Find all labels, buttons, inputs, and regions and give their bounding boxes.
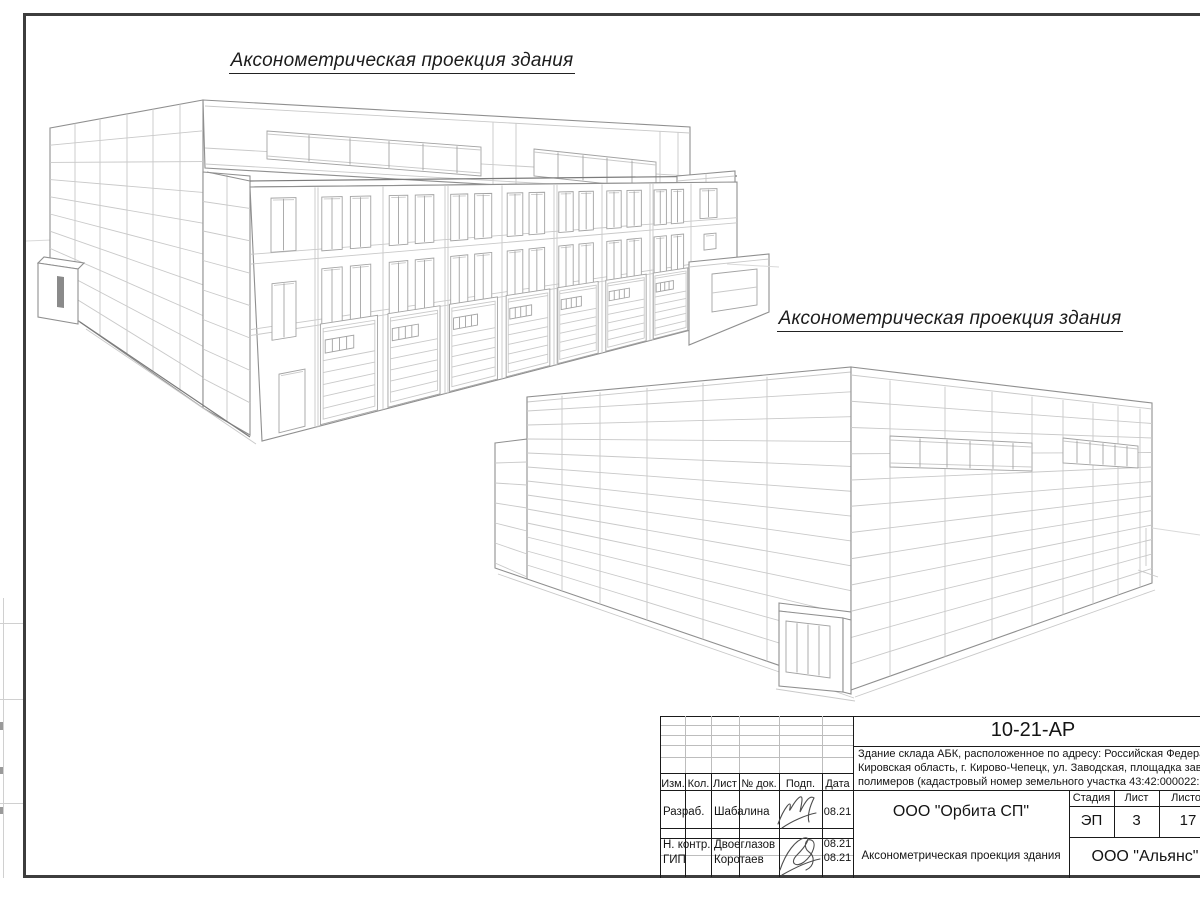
signatures [770, 788, 830, 880]
stamp-stage-value: ЭП [1069, 812, 1114, 829]
stamp-description-line2: Кировская область, г. Кирово-Чепецк, ул.… [858, 762, 1200, 775]
signature-ncontrol-gip [780, 838, 820, 875]
stamp-sheet-value: 3 [1114, 812, 1159, 829]
stamp-role-gip: ГИП [663, 854, 686, 867]
stamp-role-ncontrol: Н. контр. [663, 839, 710, 852]
axon-view-building-2 [495, 367, 1200, 701]
stamp-description-line1: Здание склада АБК, расположенное по адре… [858, 748, 1200, 761]
view1-title-text: Аксонометрическая проекция здания [229, 50, 576, 74]
stamp-org: ООО "Орбита СП" [853, 803, 1069, 821]
drawing-sheet: Аксонометрическая проекция здания Аксоно… [0, 0, 1200, 900]
stamp-name-ncontrol: Двоеглазов [714, 839, 775, 852]
stamp-col-list: Лист [711, 778, 739, 791]
stamp-col-izm: Изм. [660, 778, 686, 791]
stamp-description-line3: полимеров (кадастровый номер земельного … [858, 776, 1200, 789]
stamp-sheet-label: Лист [1114, 792, 1159, 805]
stamp-sheet-title: Аксонометрическая проекция здания [855, 850, 1067, 863]
stamp-role-developer: Разраб. [663, 806, 704, 819]
stamp-stage-label: Стадия [1069, 792, 1114, 805]
stamp-sheets-value: 17 [1159, 812, 1200, 829]
stamp-name-developer: Шабалина [714, 806, 770, 819]
stamp-doc-number: 10-21-АР [853, 719, 1200, 742]
stamp-sheets-label: Листов [1159, 792, 1200, 805]
stamp-name-gip: Коротаев [714, 854, 764, 867]
stamp-col-kol: Кол. [686, 778, 711, 791]
view2-title-text: Аксонометрическая проекция здания [777, 308, 1124, 332]
view2-title: Аксонометрическая проекция здания [770, 308, 1130, 330]
stamp-contractor: ООО "Альянс" [1069, 848, 1200, 866]
signature-developer [778, 797, 816, 828]
view1-title: Аксонометрическая проекция здания [222, 50, 582, 72]
